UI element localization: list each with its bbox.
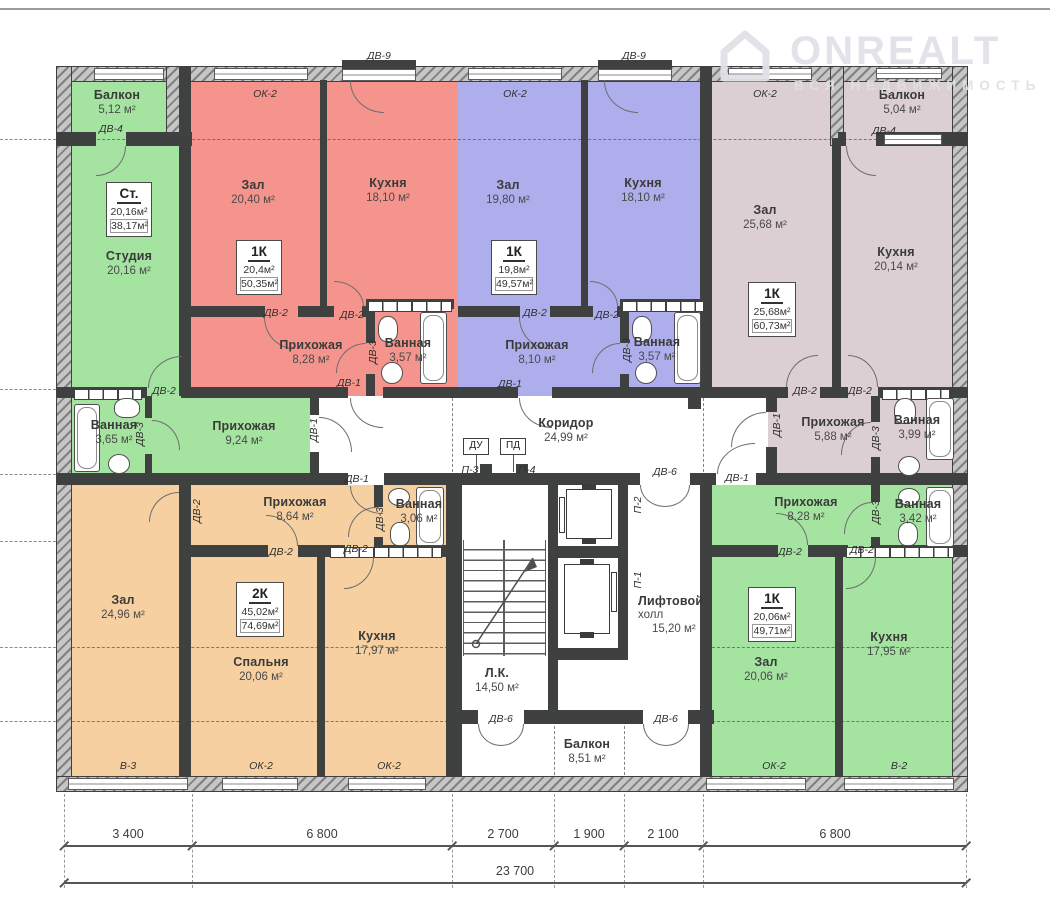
badge-total-area: 50,35м²	[240, 277, 278, 291]
vent-row	[622, 301, 704, 312]
badge-living-area: 20,4м²	[240, 264, 278, 276]
apartment-badge-blue: 1К 19,8м² 49,57м²	[491, 240, 537, 295]
elevator-counterweight	[611, 572, 617, 612]
room-label-kitchen: Кухня 18,10 м²	[366, 176, 410, 204]
axis-line	[712, 647, 954, 648]
wall	[618, 473, 628, 660]
wall	[552, 387, 788, 398]
sink-icon	[108, 454, 130, 474]
badge-total-area: 38,17м²	[110, 219, 148, 233]
door-arc	[478, 724, 501, 746]
wall	[56, 132, 96, 146]
axis-line	[62, 139, 952, 140]
wall	[458, 306, 520, 317]
watermark-house-icon	[712, 22, 778, 82]
door-label: ДВ-9	[367, 50, 391, 62]
elevator-cab	[564, 564, 610, 634]
door-label: ДВ-3	[870, 500, 882, 524]
window-label: В-3	[120, 760, 136, 772]
room-label-hall: Прихожая 8,64 м²	[263, 495, 326, 523]
shaft-label: П-2	[632, 497, 644, 514]
axis-line	[712, 721, 954, 722]
room-label-hall: Прихожая 8,28 м²	[279, 338, 342, 366]
badge-total-area: 60,73м²	[752, 319, 792, 333]
window-label: ОК-2	[249, 760, 273, 772]
badge-living-area: 20,06м²	[752, 611, 792, 623]
axis-tick	[0, 721, 56, 722]
shaft-label: П-4	[519, 464, 536, 476]
dimension-guide	[624, 794, 625, 888]
dimension-value: 2 100	[647, 827, 678, 841]
badge-type: 1К	[503, 244, 525, 262]
apartment-badge-mauve: 1К 25,68м² 60,73м²	[748, 282, 796, 337]
dimension-value: 3 400	[112, 827, 143, 841]
window	[844, 778, 954, 790]
room-label-bath: Ванная 3,99 м²	[894, 413, 941, 441]
vent-shaft	[688, 398, 701, 409]
shaft-label: П-1	[632, 572, 644, 589]
room-label-zal: Зал 25,68 м²	[743, 203, 787, 231]
staircase-arrow	[463, 540, 547, 658]
room-label-balcony-center: Балкон 8,51 м²	[564, 737, 610, 765]
badge-total-area: 74,69м²	[240, 619, 280, 633]
balcony-door-opening	[342, 69, 416, 81]
room-label-bath: Ванная 3,57 м²	[385, 336, 432, 364]
wall	[548, 473, 558, 710]
window	[222, 778, 298, 790]
door-label: ДВ-2	[793, 385, 817, 397]
dimension-total: 23 700	[496, 864, 534, 878]
wall	[524, 710, 643, 724]
door-label: ДВ-6	[654, 713, 678, 725]
wall	[558, 546, 618, 558]
window	[348, 778, 426, 790]
wall	[808, 545, 848, 557]
wall	[756, 473, 968, 485]
room-label-balcony: Балкон 5,12 м²	[94, 88, 140, 116]
badge-living-area: 19,8м²	[495, 264, 533, 276]
door-label: ДВ-1	[337, 377, 361, 389]
room-label-corridor: Коридор 24,99 м²	[538, 416, 593, 444]
wall	[835, 557, 843, 776]
toilet-icon	[114, 398, 140, 418]
door-label: ДВ-4	[99, 123, 123, 135]
door-label: ДВ-2	[191, 499, 203, 523]
wall	[317, 557, 325, 776]
door-label: ДВ-2	[778, 546, 802, 558]
elevator-counterweight	[559, 497, 565, 533]
wall	[384, 473, 640, 485]
wall	[766, 396, 777, 412]
door-arc	[665, 485, 690, 507]
dimension-value: 6 800	[819, 827, 850, 841]
badge-type: 2К	[249, 586, 271, 604]
badge-type: Ст.	[117, 186, 142, 204]
apartment-badge-green: 1К 20,06м² 49,71м²	[748, 587, 796, 642]
window-label: ОК-2	[762, 760, 786, 772]
badge-total-area: 49,57м²	[495, 277, 533, 291]
door-arc	[731, 412, 766, 447]
wall	[712, 545, 778, 557]
badge-living-area: 45,02м²	[240, 606, 280, 618]
dimension-guide	[64, 794, 65, 888]
room-label-stairs: Л.К. 14,50 м²	[475, 666, 519, 694]
dimension-line-total	[64, 882, 966, 884]
badge-total-area: 49,71м²	[752, 624, 792, 638]
wall	[179, 306, 265, 317]
door-arc	[501, 724, 524, 746]
dimension-guide	[192, 794, 193, 888]
window	[706, 778, 806, 790]
door-label: ДВ-1	[498, 378, 522, 390]
sink-icon	[635, 362, 657, 384]
wall	[310, 396, 319, 415]
wall	[820, 387, 848, 398]
floor-plan: ДУ ПД Ст. 20,16м² 38,17м² 1К 20,4м² 50,3…	[0, 0, 1050, 910]
axis-line	[452, 398, 453, 472]
room-label-hall: Прихожая 5,88 м²	[801, 415, 864, 443]
apartment-badge-red: 1К 20,4м² 50,35м²	[236, 240, 282, 295]
dimension-line	[64, 845, 966, 847]
badge-type: 1К	[761, 286, 783, 304]
elevator-cab	[566, 489, 612, 539]
room-label-lift-hall: Лифтовой холл 15,20 м²	[638, 594, 703, 635]
wall	[145, 396, 152, 418]
apartment-badge-orange: 2К 45,02м² 74,69м²	[236, 582, 284, 637]
room-label-bath: Ванная 3,57 м²	[634, 335, 681, 363]
page-top-divider	[0, 8, 1050, 10]
door-label: ДВ-4	[872, 125, 896, 137]
window	[68, 778, 188, 790]
dimension-value: 1 900	[573, 827, 604, 841]
room-label-kitchen: Кухня 17,95 м²	[867, 630, 911, 658]
door-label: ДВ-2	[848, 385, 872, 397]
wall	[179, 485, 191, 776]
door-label: ДВ-2	[344, 543, 368, 555]
room-label-kitchen: Кухня 20,14 м²	[874, 245, 918, 273]
watermark-tagline: ВСЯ НЕДВИЖИМОСТЬ	[794, 78, 1041, 93]
wall	[366, 374, 375, 396]
axis-line	[624, 726, 625, 775]
smoke-exhaust-box: ДУ	[463, 438, 489, 455]
door-label: ДВ-1	[771, 413, 783, 437]
door-arc	[643, 724, 666, 746]
door-label: ДВ-3	[870, 426, 882, 450]
door-label: ДВ-2	[595, 309, 619, 321]
room-label-studio: Студия 20,16 м²	[106, 249, 152, 277]
door-arc	[319, 417, 352, 452]
wall	[581, 306, 593, 317]
watermark-brand: ONREALT	[790, 29, 1001, 74]
door-arc	[666, 724, 689, 746]
wall	[320, 306, 334, 317]
wall	[446, 473, 462, 776]
window-label: ОК-2	[503, 88, 527, 100]
exterior-wall	[952, 66, 968, 792]
room-label-hall: Прихожая 8,28 м²	[774, 495, 837, 523]
room-label-kitchen: Кухня 17,97 м²	[355, 629, 399, 657]
door-label: ДВ-2	[264, 307, 288, 319]
dimension-guide	[703, 794, 704, 888]
room-label-hall: Прихожая 8,10 м²	[505, 338, 568, 366]
axis-tick	[0, 389, 56, 390]
door-label: ДВ-2	[523, 307, 547, 319]
wall	[700, 66, 712, 396]
window-label: В-2	[891, 760, 907, 772]
dimension-value: 6 800	[306, 827, 337, 841]
elevator-door-mark	[582, 484, 596, 490]
axis-tick	[0, 541, 56, 542]
exterior-wall	[56, 66, 72, 792]
axis-tick	[0, 139, 56, 140]
room-label-bath: Ванная 3,65 м²	[91, 418, 138, 446]
exterior-wall	[56, 776, 968, 792]
balcony-door-opening	[598, 69, 672, 81]
room-label-zal: Зал 20,40 м²	[231, 178, 275, 206]
door-label: ДВ-2	[269, 546, 293, 558]
wall-stub	[480, 464, 492, 473]
axis-tick	[0, 647, 56, 648]
dimension-guide	[966, 794, 967, 888]
window	[94, 68, 164, 80]
leader-line	[513, 455, 514, 472]
door-label: ДВ-1	[308, 418, 320, 442]
door-label: ДВ-9	[622, 50, 646, 62]
wall	[548, 648, 628, 660]
wall	[832, 138, 841, 396]
toilet-icon	[390, 522, 410, 546]
door-label: ДВ-1	[725, 472, 749, 484]
wall	[871, 396, 880, 422]
room-label-zal: Зал 20,06 м²	[744, 655, 788, 683]
wall	[446, 710, 478, 724]
sink-icon	[381, 362, 403, 384]
room-label-bath: Ванная 3,42 м²	[895, 497, 942, 525]
room-label-kitchen: Кухня 18,10 м²	[621, 176, 665, 204]
axis-line	[554, 726, 555, 775]
door-label: ДВ-2	[850, 544, 874, 556]
badge-living-area: 20,16м²	[110, 206, 148, 218]
wall	[181, 387, 348, 398]
badge-type: 1К	[248, 244, 270, 262]
elevator-door-mark	[582, 538, 596, 544]
window-label: ОК-2	[753, 88, 777, 100]
badge-living-area: 25,68м²	[752, 306, 792, 318]
wall	[56, 473, 348, 485]
elevator-door-mark	[580, 632, 594, 638]
wall	[320, 80, 327, 310]
shaft-label: П-3	[462, 464, 479, 476]
window	[214, 68, 308, 80]
door-arc	[350, 398, 383, 428]
wall	[688, 710, 714, 724]
room-label-hall: Прихожая 9,24 м²	[212, 419, 275, 447]
window-label: ОК-2	[377, 760, 401, 772]
room-label-zal: Зал 24,96 м²	[101, 593, 145, 621]
dimension-guide	[452, 794, 453, 888]
vent-row	[368, 301, 452, 312]
badge-type: 1К	[761, 591, 783, 609]
door-label: ДВ-1	[345, 473, 369, 485]
sink-icon	[898, 456, 920, 476]
room-label-bedroom: Спальня 20,06 м²	[233, 655, 288, 683]
axis-line	[703, 398, 704, 472]
wall	[179, 66, 191, 396]
door-label: ДВ-3	[374, 507, 386, 531]
wall	[179, 545, 268, 557]
axis-line	[62, 721, 448, 722]
toilet-icon	[898, 522, 918, 546]
window	[468, 68, 562, 80]
door-label: ДВ-3	[367, 340, 379, 364]
apartment-badge-studio: Ст. 20,16м² 38,17м²	[106, 182, 152, 237]
door-arc	[717, 443, 755, 474]
window-label: ОК-2	[253, 88, 277, 100]
door-label: ДВ-6	[653, 466, 677, 478]
door-label: ДВ-2	[340, 309, 364, 321]
dimension-guide	[554, 794, 555, 888]
elevator-door-mark	[580, 559, 594, 565]
door-label: ДВ-3	[621, 338, 633, 362]
fire-valve-box: ПД	[500, 438, 526, 455]
dimension-value: 2 700	[487, 827, 518, 841]
wall	[298, 306, 322, 317]
axis-tick	[0, 474, 56, 475]
room-label-zal: Зал 19,80 м²	[486, 178, 530, 206]
wall	[550, 306, 581, 317]
room-label-bath: Ванная 3,06 м²	[396, 497, 443, 525]
door-label: ДВ-2	[152, 385, 176, 397]
wall	[581, 80, 588, 310]
door-label: ДВ-6	[489, 713, 513, 725]
